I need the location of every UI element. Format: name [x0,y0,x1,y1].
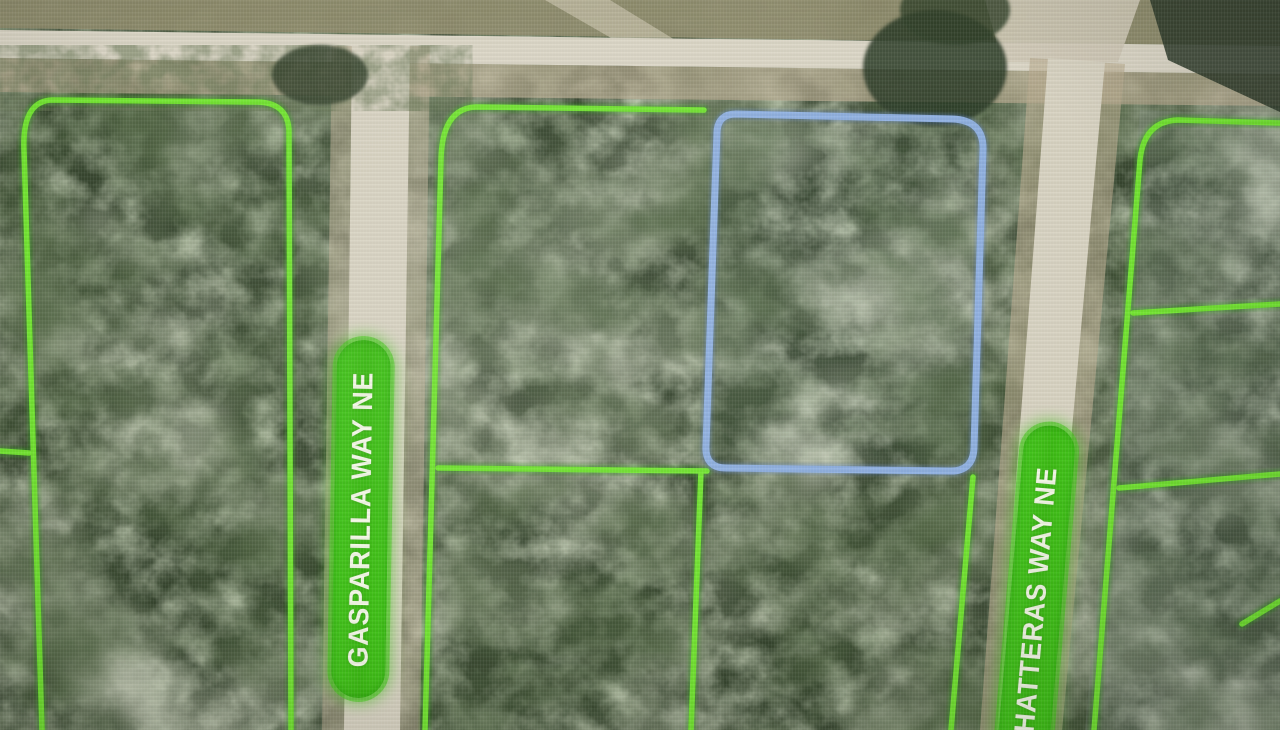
aerial-imagery [0,0,1280,730]
highlighted-parcel-glow [706,114,983,471]
street-label-gasparilla-way-ne: GASPARILLA WAY NE [331,340,391,699]
tree-clump-intersection [272,45,368,105]
parcel-line-left-edge-stub [0,451,29,453]
aerial-parcel-map: GASPARILLA WAY NE HATTERAS WAY NE [0,0,1280,730]
street-name: GASPARILLA WAY NE [342,371,379,667]
parcel-line-middle-horizontal [438,468,707,471]
